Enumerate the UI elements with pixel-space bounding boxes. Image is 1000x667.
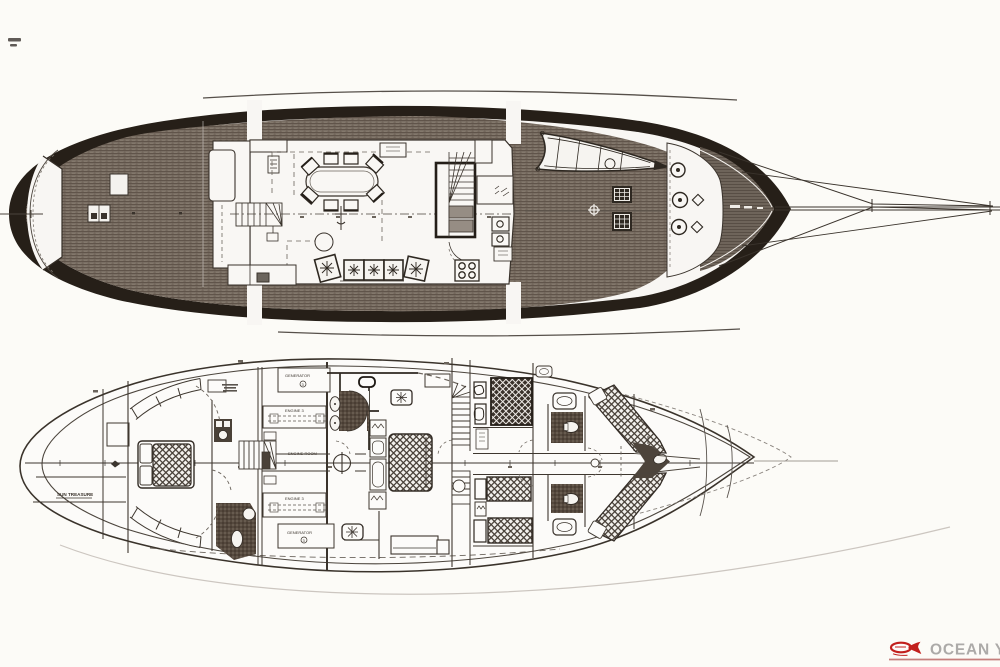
svg-text:GENERATOR: GENERATOR [287,530,312,535]
svg-text:ENGINE 3: ENGINE 3 [285,408,304,413]
svg-text:ENGINE ROOM: ENGINE ROOM [288,451,317,456]
svg-text:SUN TREASURE: SUN TREASURE [57,492,93,497]
svg-text:GENERATOR: GENERATOR [285,373,310,378]
svg-text:ENGINE 3: ENGINE 3 [285,496,304,501]
svg-text:OCEAN YA: OCEAN YA [930,642,1000,659]
